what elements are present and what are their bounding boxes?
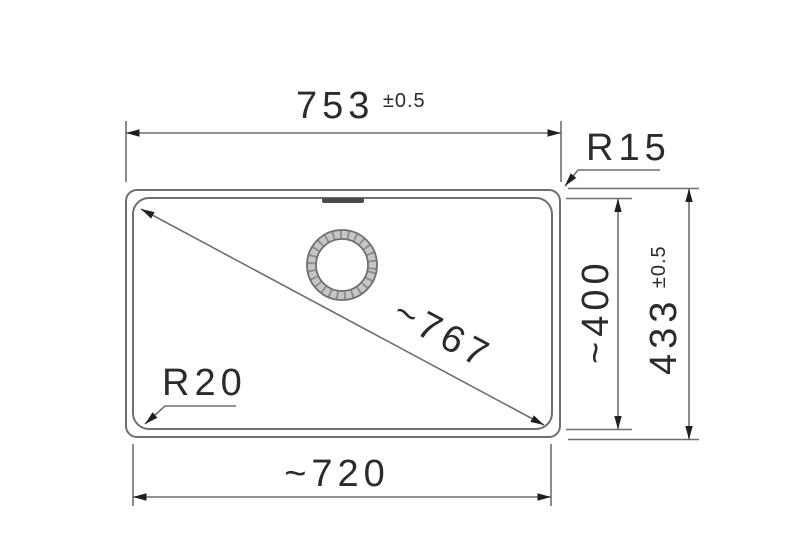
top-width-dimension: 753 ±0.5 (126, 85, 561, 182)
corner-radius-top-right-label: R15 (586, 127, 671, 169)
drawing-canvas: ~767 753 ±0.5 R15 ~400 433 ±0.5 R20 (0, 0, 800, 544)
overflow-slot (322, 198, 364, 203)
inner-width-label: ~720 (284, 453, 390, 495)
drain-outer-circle (307, 230, 377, 300)
inner-width-dimension: ~720 (133, 444, 551, 506)
corner-radius-bottom-left-label: R20 (162, 362, 247, 404)
corner-radius-bottom-left-callout: R20 (145, 362, 247, 424)
inner-height-label: ~400 (575, 258, 617, 364)
drain-hole (306, 229, 378, 301)
drain-inner-circle (316, 239, 368, 291)
r15-leader-line (565, 170, 660, 186)
sink-dimension-drawing: ~767 753 ±0.5 R15 ~400 433 ±0.5 R20 (0, 0, 800, 544)
corner-radius-top-right-callout: R15 (565, 127, 671, 186)
inner-height-dimension: ~400 (566, 199, 632, 430)
r20-leader-line (145, 406, 236, 424)
diagonal-dimension-label: ~767 (386, 291, 499, 378)
top-width-label: 753 ±0.5 (296, 85, 426, 127)
outer-height-label: 433 ±0.5 (643, 245, 685, 375)
